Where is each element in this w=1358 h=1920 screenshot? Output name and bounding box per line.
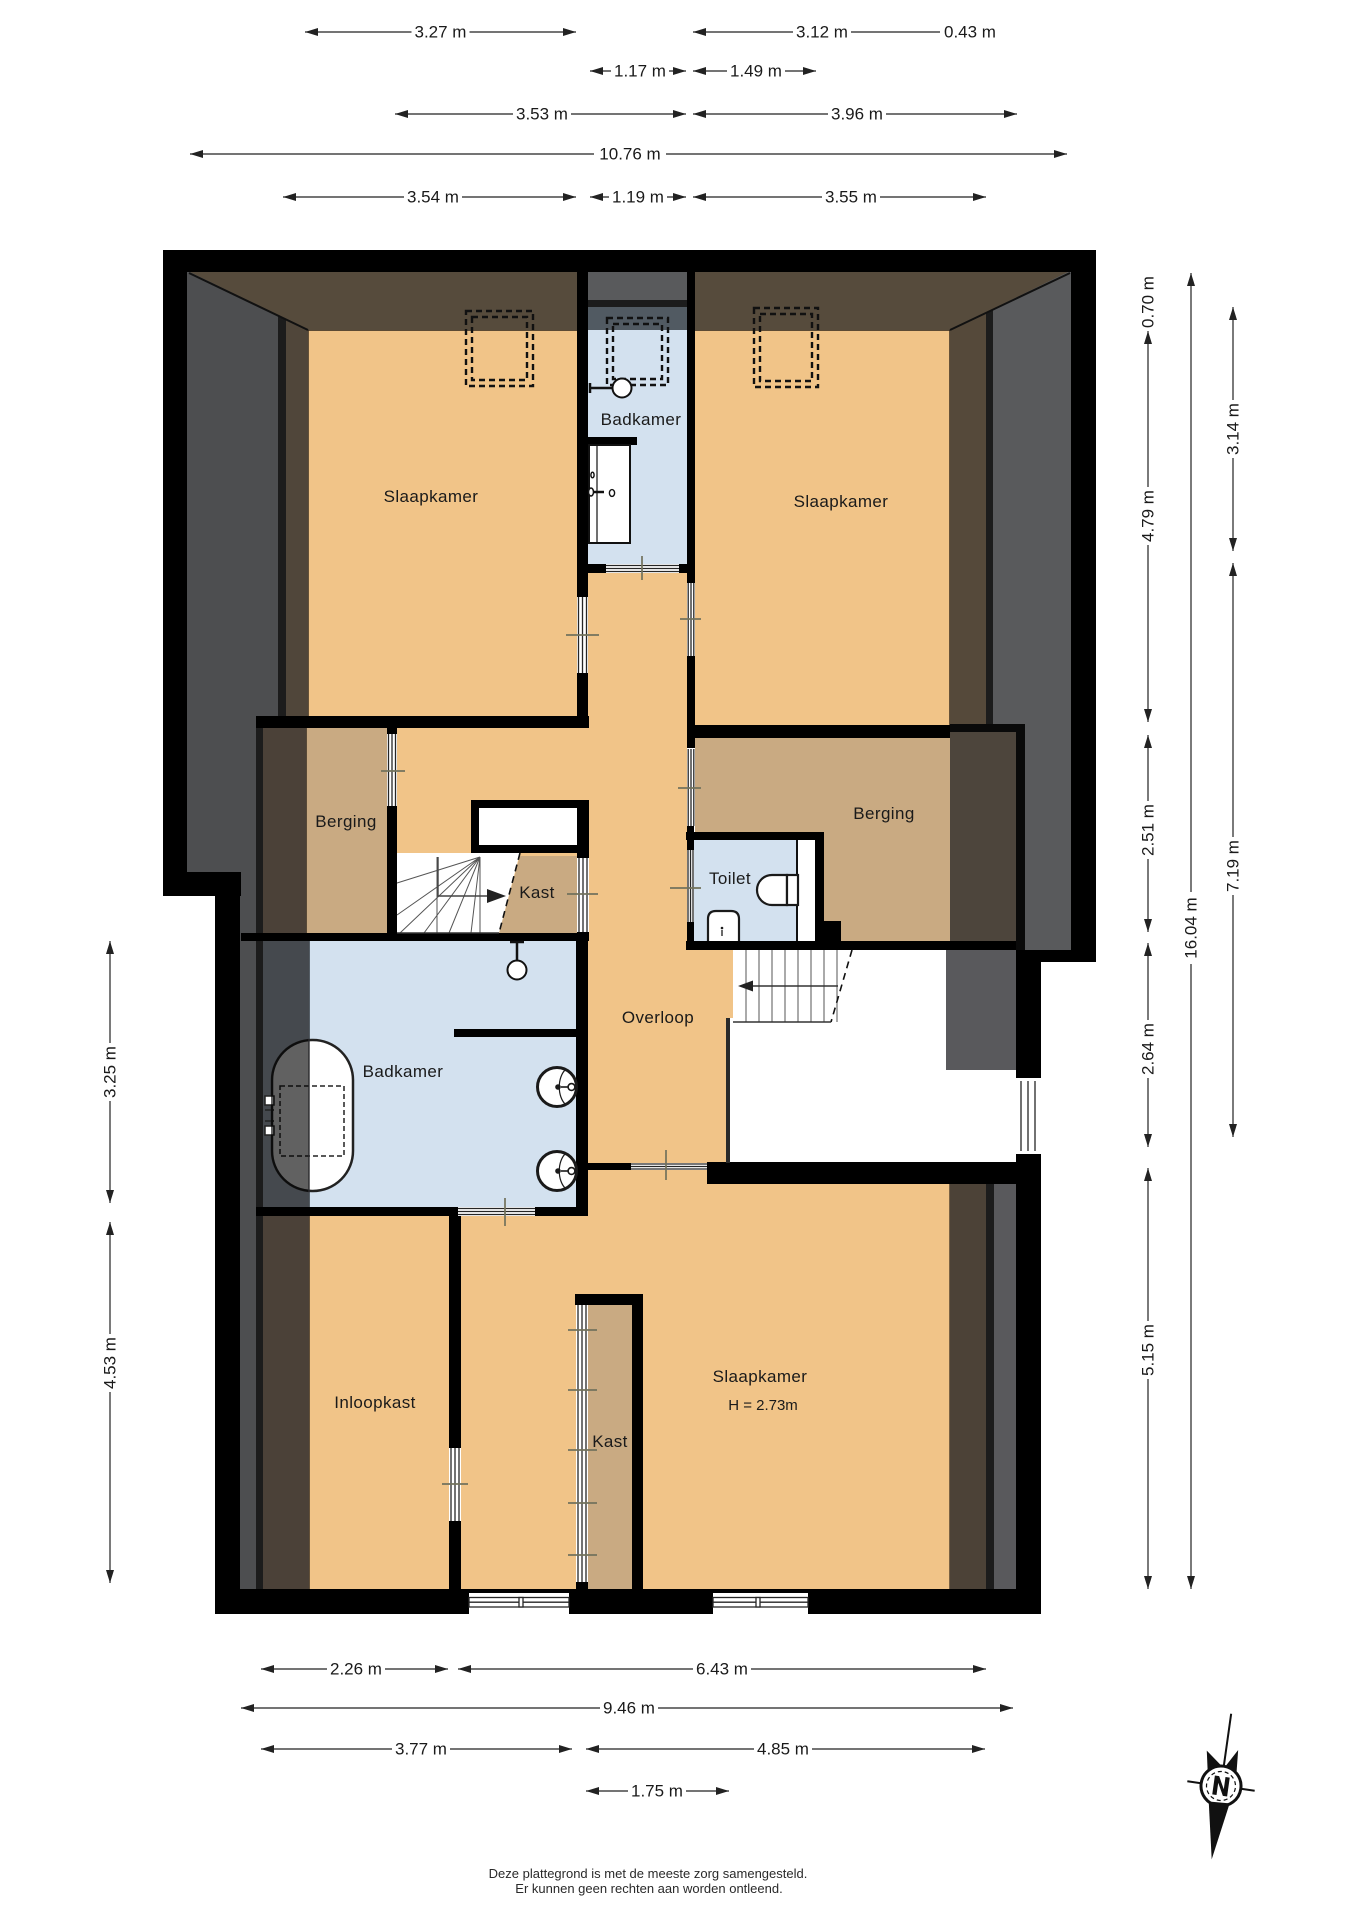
svg-text:3.12 m: 3.12 m	[796, 23, 848, 42]
svg-text:9.46 m: 9.46 m	[603, 1699, 655, 1718]
svg-text:16.04 m: 16.04 m	[1182, 897, 1201, 958]
svg-text:1.49 m: 1.49 m	[730, 62, 782, 81]
svg-text:3.55 m: 3.55 m	[825, 188, 877, 207]
svg-text:Berging: Berging	[315, 812, 376, 831]
svg-text:Badkamer: Badkamer	[601, 410, 682, 429]
svg-text:3.96 m: 3.96 m	[831, 105, 883, 124]
svg-text:4.53 m: 4.53 m	[101, 1337, 120, 1389]
svg-text:Inloopkast: Inloopkast	[334, 1393, 416, 1412]
svg-text:1.75 m: 1.75 m	[631, 1782, 683, 1801]
svg-text:Slaapkamer: Slaapkamer	[794, 492, 889, 511]
svg-text:2.64 m: 2.64 m	[1139, 1023, 1158, 1075]
svg-text:7.19 m: 7.19 m	[1224, 840, 1243, 892]
svg-text:4.85 m: 4.85 m	[757, 1740, 809, 1759]
svg-text:Slaapkamer: Slaapkamer	[713, 1367, 808, 1386]
svg-text:Overloop: Overloop	[622, 1008, 694, 1027]
svg-text:1.19 m: 1.19 m	[612, 188, 664, 207]
svg-text:3.14 m: 3.14 m	[1224, 403, 1243, 455]
svg-text:0.70 m: 0.70 m	[1139, 276, 1158, 328]
svg-text:10.76 m: 10.76 m	[599, 145, 660, 164]
svg-text:2.51 m: 2.51 m	[1139, 804, 1158, 856]
svg-text:Berging: Berging	[853, 804, 914, 823]
svg-text:1.17 m: 1.17 m	[614, 62, 666, 81]
svg-text:6.43 m: 6.43 m	[696, 1660, 748, 1679]
svg-text:Kast: Kast	[519, 883, 555, 902]
svg-text:0.43 m: 0.43 m	[944, 23, 996, 42]
svg-text:2.26 m: 2.26 m	[330, 1660, 382, 1679]
svg-text:3.27 m: 3.27 m	[415, 23, 467, 42]
svg-text:5.15 m: 5.15 m	[1139, 1324, 1158, 1376]
svg-text:Slaapkamer: Slaapkamer	[384, 487, 479, 506]
svg-text:Kast: Kast	[592, 1432, 628, 1451]
svg-text:3.77 m: 3.77 m	[395, 1740, 447, 1759]
svg-text:Er kunnen geen rechten aan wor: Er kunnen geen rechten aan worden ontlee…	[515, 1881, 782, 1896]
svg-text:Badkamer: Badkamer	[363, 1062, 444, 1081]
svg-text:3.54 m: 3.54 m	[407, 188, 459, 207]
svg-text:3.25 m: 3.25 m	[101, 1046, 120, 1098]
svg-text:Toilet: Toilet	[709, 869, 751, 888]
svg-text:3.53 m: 3.53 m	[516, 105, 568, 124]
svg-text:H = 2.73m: H = 2.73m	[728, 1397, 798, 1414]
svg-text:4.79 m: 4.79 m	[1139, 490, 1158, 542]
svg-text:Deze plattegrond is met de mee: Deze plattegrond is met de meeste zorg s…	[489, 1866, 808, 1881]
